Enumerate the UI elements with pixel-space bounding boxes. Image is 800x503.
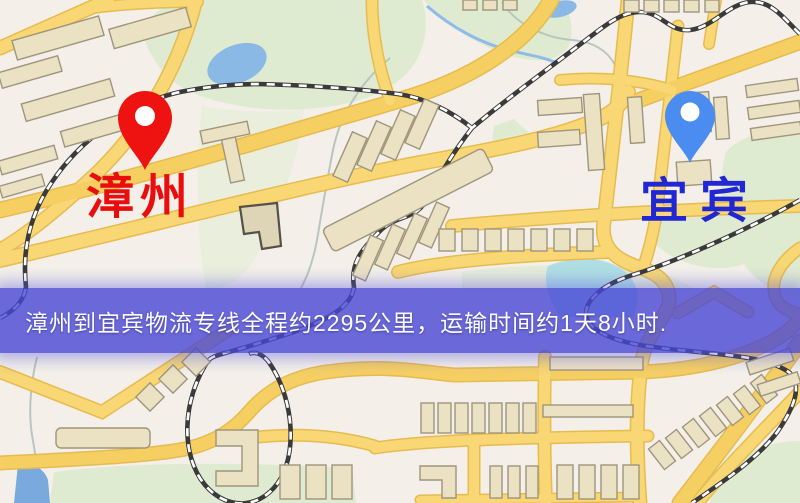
route-info-text: 漳州到宜宾物流专线全程约2295公里，运输时间约1天8小时. [0,304,667,338]
destination-city-label: 宜宾 [640,178,760,226]
map-canvas [0,0,800,503]
route-map: 漳州 宜宾 漳州到宜宾物流专线全程约2295公里，运输时间约1天8小时. [0,0,800,503]
origin-city-label: 漳州 [86,174,194,222]
route-info-banner: 漳州到宜宾物流专线全程约2295公里，运输时间约1天8小时. [0,288,800,353]
